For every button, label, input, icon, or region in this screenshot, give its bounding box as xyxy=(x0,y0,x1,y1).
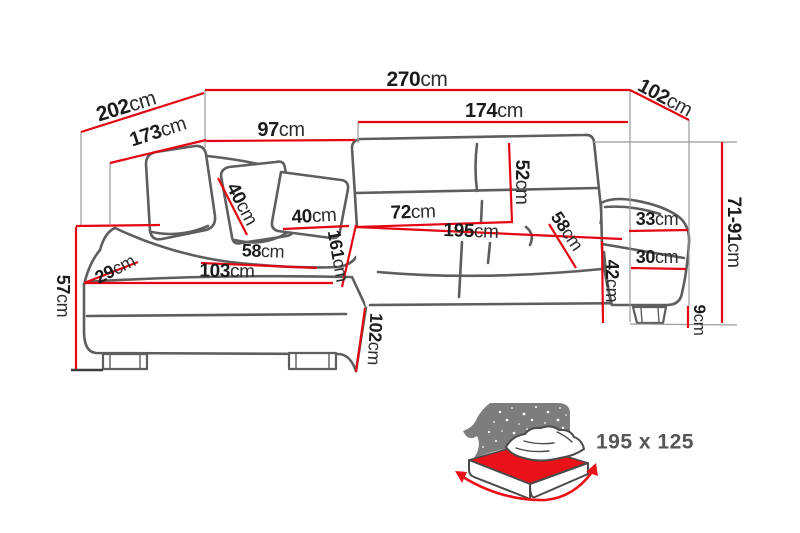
dim-label-9: 9cm xyxy=(691,305,710,336)
sleeping-size-label: 195 x 125 xyxy=(596,431,694,454)
dim-label-40-seat: 40cm xyxy=(291,204,337,227)
dim-label-174: 174cm xyxy=(465,100,523,122)
dim-label-270: 270cm xyxy=(386,68,447,91)
dim-label-103: 103cm xyxy=(199,260,254,282)
ext-floor-right xyxy=(630,324,737,325)
dim-label-58-left: 58cm xyxy=(241,240,284,261)
dim-label-30: 30cm xyxy=(636,247,678,267)
dim-label-195: 195cm xyxy=(443,220,499,243)
sofa-bed-icon xyxy=(455,403,598,500)
dim-label-33: 33cm xyxy=(636,209,678,229)
dim-label-102-top: 102cm xyxy=(634,75,696,122)
backrest-seam-vertical xyxy=(476,144,478,191)
backrest-seam-lower xyxy=(481,201,482,223)
dim-label-71-91: 71-91cm xyxy=(724,196,745,267)
chaise-body-fill xyxy=(84,228,366,371)
dim-label-102-front: 102cm xyxy=(364,312,387,365)
dimension-diagram: 270cm 202cm 173cm 97cm 174cm 102cm 40cm … xyxy=(0,0,800,533)
dim-line-30 xyxy=(631,268,686,269)
dim-label-72: 72cm xyxy=(390,201,436,224)
dim-label-42: 42cm xyxy=(602,260,622,302)
sofa-dimension-drawing: 270cm 202cm 173cm 97cm 174cm 102cm 40cm … xyxy=(0,0,800,533)
dim-line-33 xyxy=(629,230,688,231)
sofa-sketch xyxy=(84,135,689,371)
dim-label-97: 97cm xyxy=(257,119,304,141)
dim-label-52: 52cm xyxy=(512,160,533,205)
dim-label-57: 57cm xyxy=(53,275,73,317)
dim-label-202: 202cm xyxy=(93,86,158,126)
leg-right xyxy=(633,307,666,323)
dim-line-seat-height-ref xyxy=(76,225,160,226)
